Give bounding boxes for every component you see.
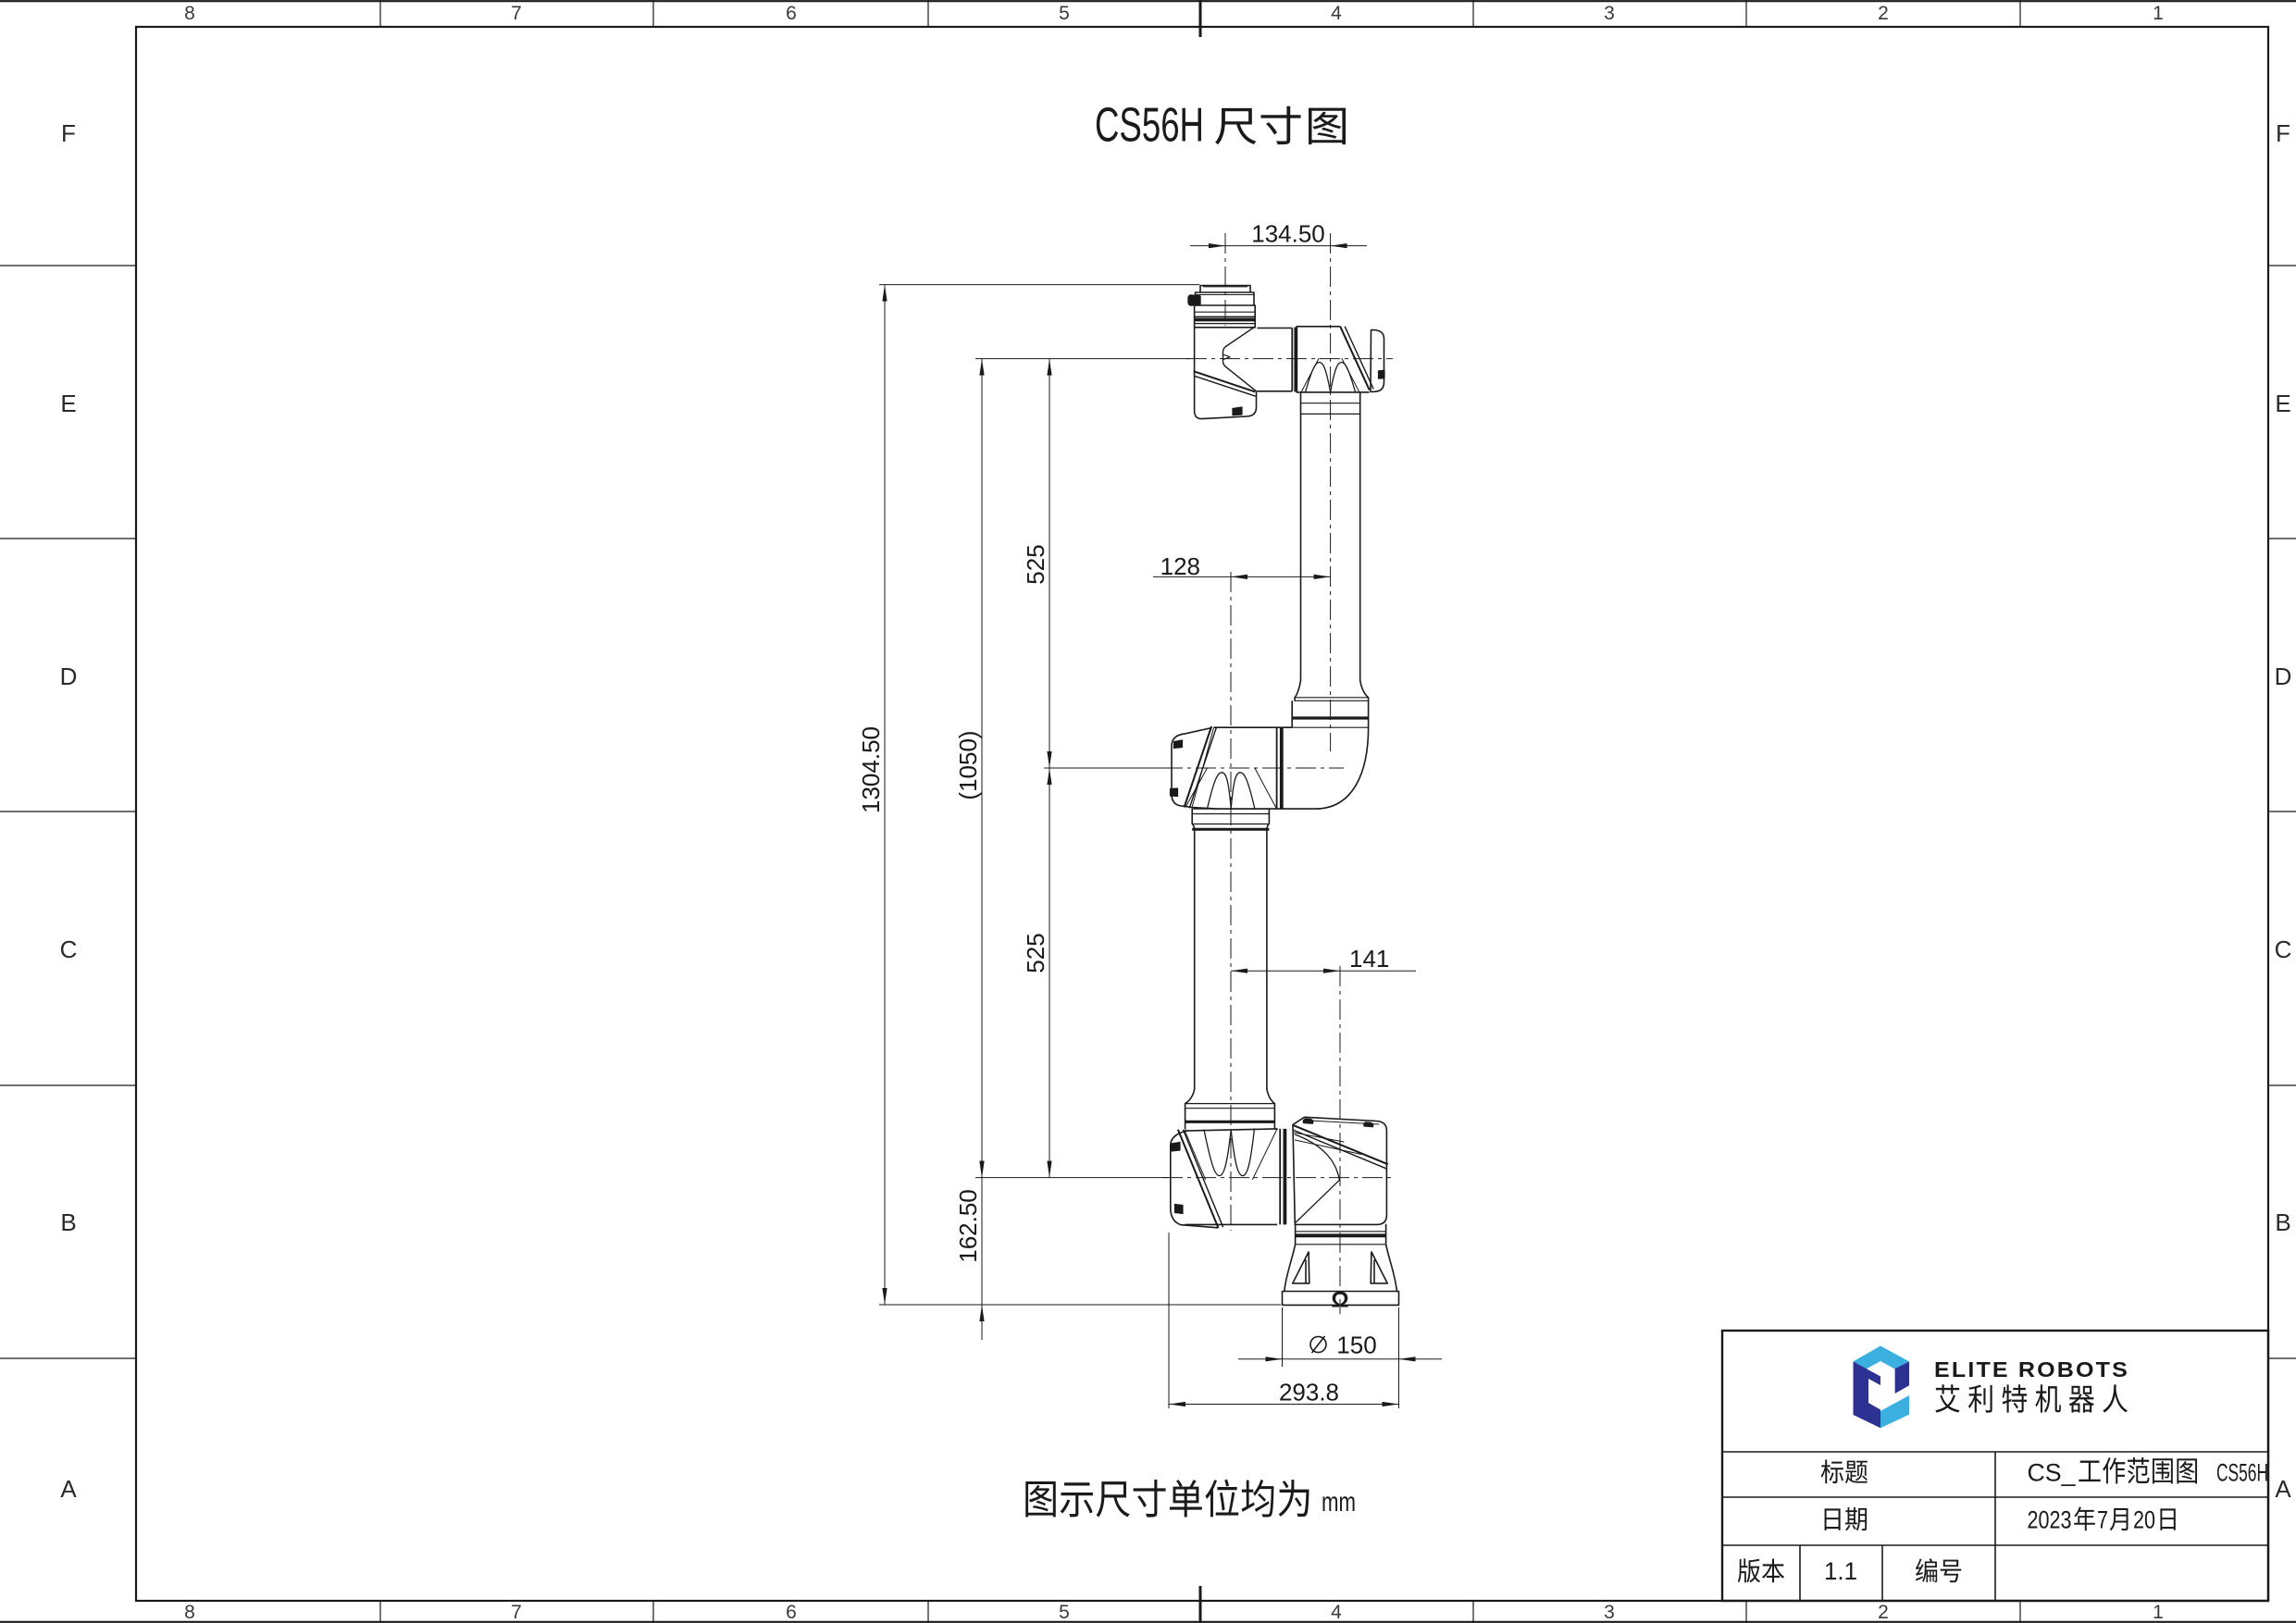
svg-text:1304.50: 1304.50 <box>857 726 885 813</box>
svg-text:6: 6 <box>786 3 797 24</box>
svg-text:mm: mm <box>1322 1487 1356 1518</box>
svg-text:F: F <box>61 119 76 147</box>
svg-text:CS_: CS_ <box>2028 1459 2077 1487</box>
svg-text:8: 8 <box>184 3 195 24</box>
svg-text:1: 1 <box>2153 1602 2164 1623</box>
svg-text:ELITE ROBOTS: ELITE ROBOTS <box>1934 1357 2129 1381</box>
svg-text:8: 8 <box>184 1602 195 1623</box>
svg-text:CS56H: CS56H <box>1095 99 1204 153</box>
svg-text:6: 6 <box>786 1602 797 1623</box>
svg-text:D: D <box>2275 663 2292 690</box>
svg-text:2023: 2023 <box>2028 1506 2072 1534</box>
svg-text:7: 7 <box>511 3 522 24</box>
svg-text:5: 5 <box>1059 1602 1070 1623</box>
svg-text:4: 4 <box>1331 3 1342 24</box>
svg-text:150: 150 <box>1336 1332 1376 1359</box>
svg-text:293.8: 293.8 <box>1279 1379 1339 1406</box>
svg-text:F: F <box>2276 119 2290 147</box>
svg-text:4: 4 <box>1331 1602 1342 1623</box>
svg-text:162.50: 162.50 <box>954 1189 982 1263</box>
svg-text:A: A <box>2275 1475 2291 1503</box>
svg-text:141: 141 <box>1349 945 1389 973</box>
svg-text:2: 2 <box>1878 3 1889 24</box>
svg-text:2: 2 <box>1878 1602 1889 1623</box>
svg-text:C: C <box>60 935 78 963</box>
svg-text:(1050): (1050) <box>954 730 982 799</box>
svg-text:20: 20 <box>2133 1506 2155 1534</box>
svg-text:525: 525 <box>1022 544 1049 584</box>
svg-text:E: E <box>2275 390 2290 417</box>
svg-text:B: B <box>60 1208 76 1236</box>
svg-text:B: B <box>2275 1208 2290 1236</box>
svg-text:1.1: 1.1 <box>1824 1557 1857 1585</box>
svg-text:A: A <box>60 1475 77 1503</box>
svg-text:128: 128 <box>1160 552 1200 580</box>
svg-text:525: 525 <box>1022 933 1049 973</box>
svg-text:C: C <box>2275 935 2292 963</box>
svg-text:E: E <box>60 390 76 417</box>
svg-text:1: 1 <box>2153 3 2164 24</box>
svg-text:CS56H: CS56H <box>2216 1459 2268 1487</box>
svg-text:7: 7 <box>2097 1506 2108 1534</box>
svg-text:7: 7 <box>511 1602 522 1623</box>
svg-text:3: 3 <box>1604 3 1615 24</box>
svg-text:D: D <box>60 663 78 690</box>
svg-text:5: 5 <box>1059 3 1070 24</box>
svg-text:3: 3 <box>1604 1602 1615 1623</box>
svg-text:134.50: 134.50 <box>1251 220 1325 248</box>
